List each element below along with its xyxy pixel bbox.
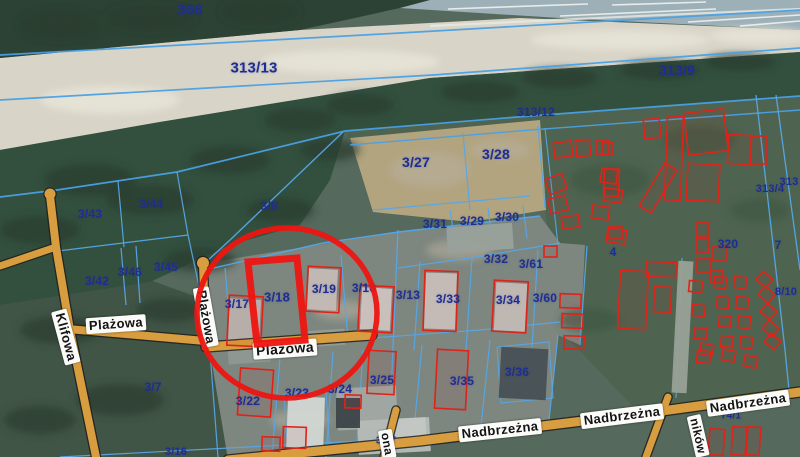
map-viewport[interactable]: 366313/13313/9313/123/273/283/83/433/443… (0, 0, 800, 457)
highlight-circle (197, 228, 377, 398)
highlight-annotation-layer (0, 0, 800, 457)
highlight-parcel-rect (248, 258, 305, 344)
